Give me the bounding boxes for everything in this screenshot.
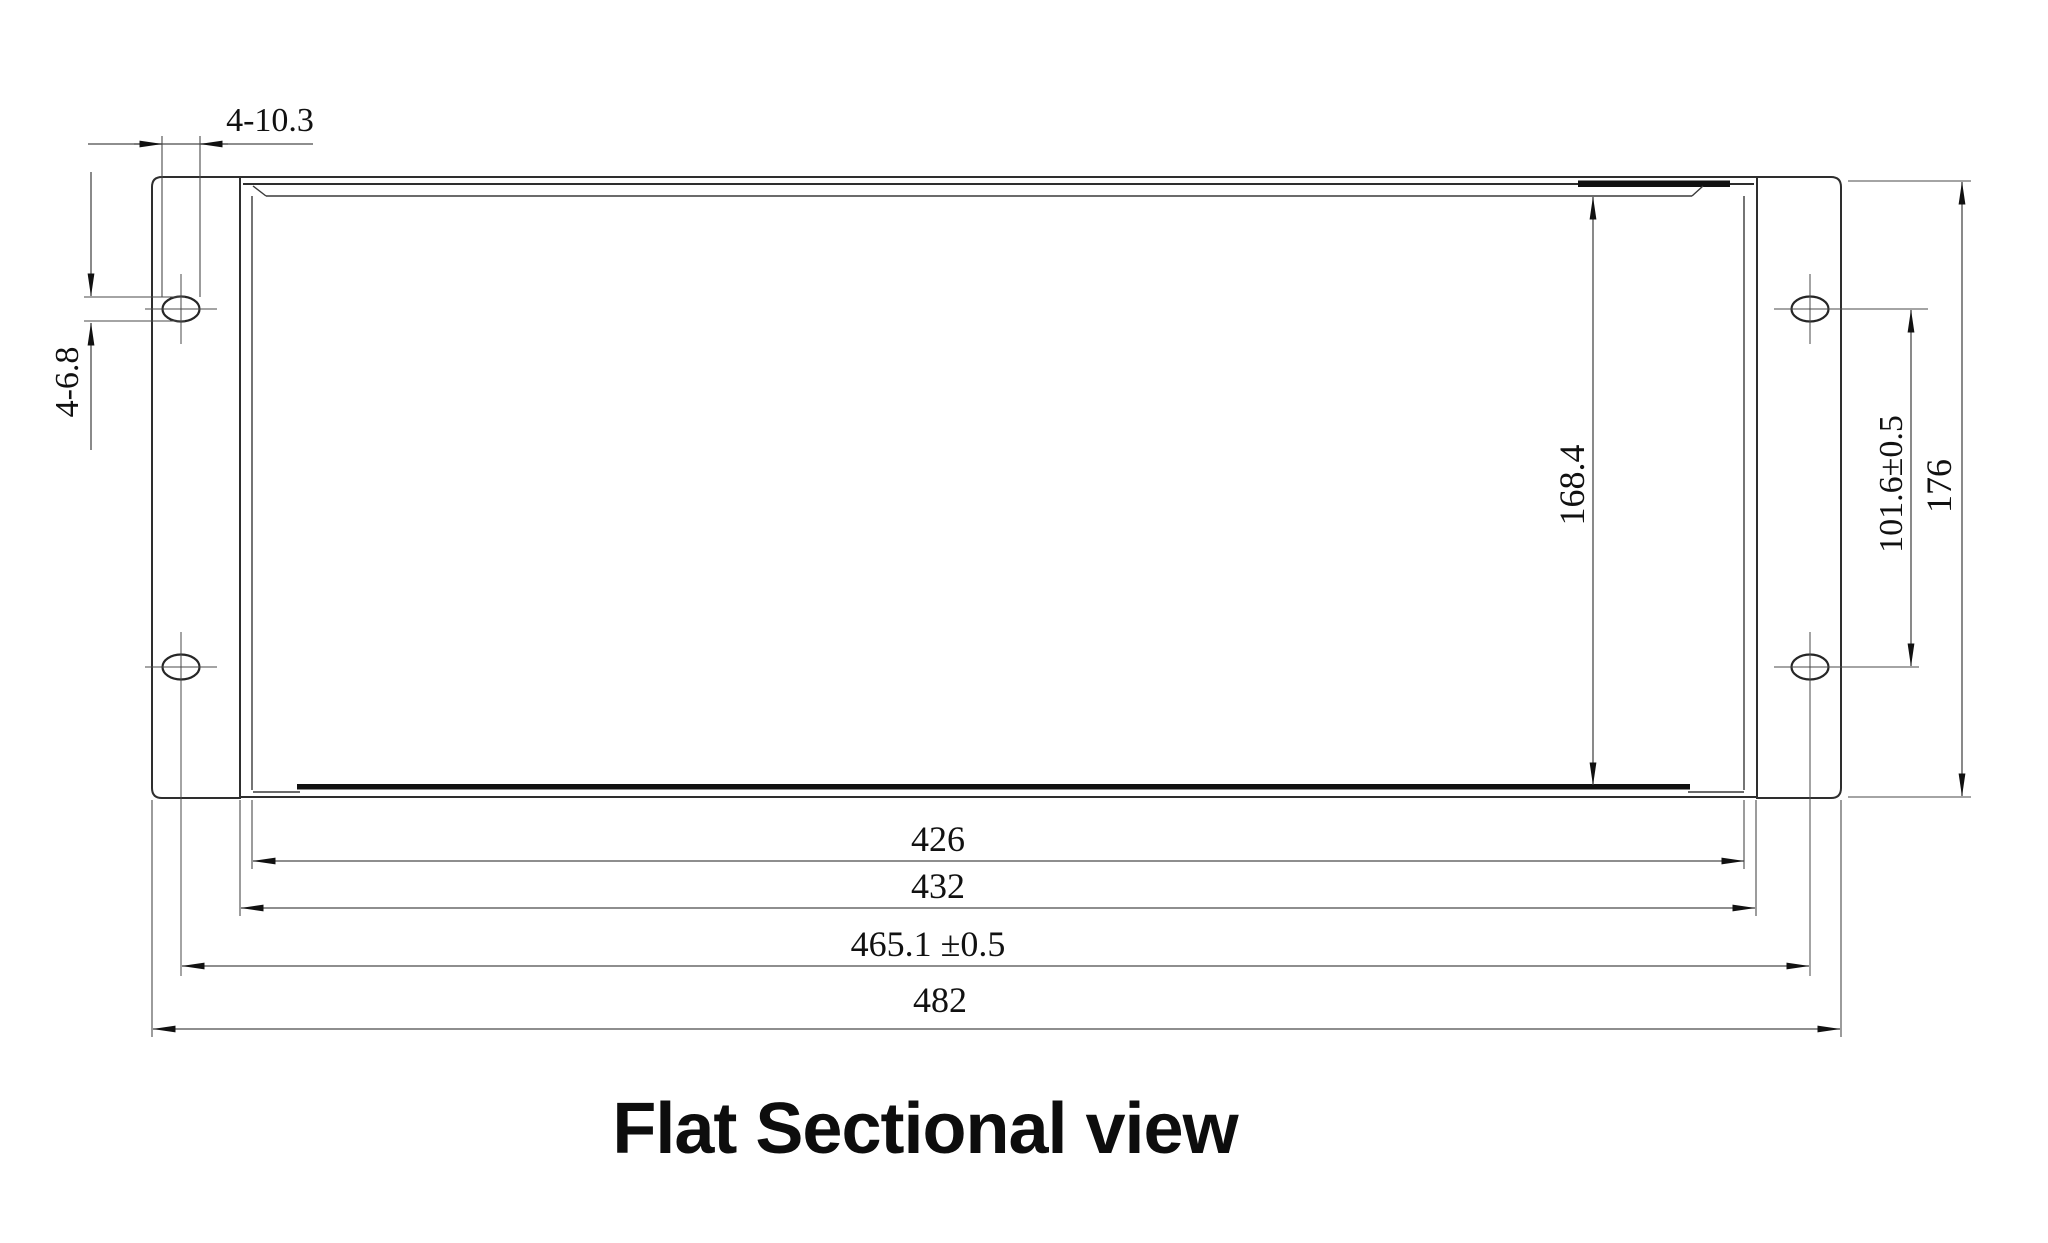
top-edge-thick-segment	[1578, 181, 1730, 188]
dimension-hole-pitch-vertical: 101.6±0.5	[1873, 310, 1911, 666]
dim-label-inner-width: 426	[911, 819, 965, 859]
dim-label-hole-pitch-v: 101.6±0.5	[1873, 415, 1910, 553]
dim-label-body-width: 432	[911, 866, 965, 906]
dim-label-slot-height: 4-6.8	[49, 347, 86, 418]
dim-label-overall-width: 482	[913, 980, 967, 1020]
dimension-inner-width: 426	[252, 800, 1744, 869]
dimension-hole-pitch-horizontal: 465.1 ±0.5	[182, 924, 1809, 966]
bottom-edge-thick-segment	[297, 784, 1690, 790]
dim-label-overall-height: 176	[1919, 459, 1959, 513]
drawing-title: Flat Sectional view	[612, 1089, 1239, 1169]
inner-top-right-jog	[1692, 186, 1703, 196]
left-mounting-ear	[152, 177, 240, 798]
panel-body-outline	[240, 177, 1757, 797]
dim-label-inner-height: 168.4	[1552, 445, 1592, 526]
right-mounting-ear	[1757, 177, 1841, 798]
inner-top-left-jog	[253, 186, 266, 196]
dim-label-slot-width: 4-10.3	[226, 102, 314, 139]
dimension-slot-height: 4-6.8	[49, 172, 185, 450]
drawing-canvas: 4-10.3 4-6.8 168.4 101.6±0.5 176 426 432	[0, 0, 2048, 1243]
dim-label-hole-pitch-h: 465.1 ±0.5	[851, 924, 1006, 964]
dimension-inner-height: 168.4	[1552, 197, 1593, 785]
flat-sectional-view-drawing: 4-10.3 4-6.8 168.4 101.6±0.5 176 426 432	[0, 0, 2048, 1243]
dimension-body-width: 432	[240, 800, 1756, 916]
mounting-slots	[145, 274, 1928, 976]
dimension-overall-width: 482	[152, 800, 1841, 1037]
dimension-slot-width: 4-10.3	[88, 102, 314, 297]
